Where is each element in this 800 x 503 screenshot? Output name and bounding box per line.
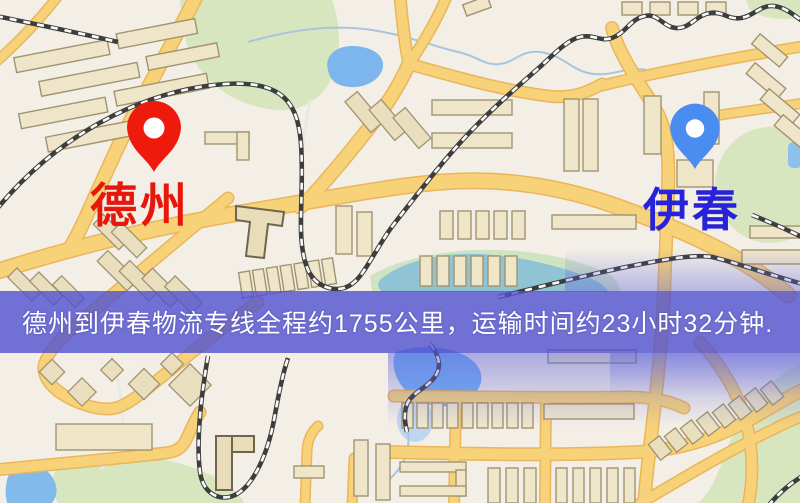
route-info-banner: 德州到伊春物流专线全程约1755公里，运输时间约23小时32分钟. — [0, 291, 800, 353]
origin-label: 德州 — [90, 179, 190, 232]
origin-pin-hole — [144, 118, 165, 139]
map-canvas: 德州 伊春 — [0, 0, 800, 503]
route-info-text: 德州到伊春物流专线全程约1755公里，运输时间约23小时32分钟. — [22, 304, 773, 340]
map-screenshot: 德州 伊春 德州到伊春物流专线全程约1755公里，运输时间约23小时32分钟. — [0, 0, 800, 503]
destination-label: 伊春 — [642, 184, 741, 236]
destination-pin-hole — [686, 119, 704, 137]
